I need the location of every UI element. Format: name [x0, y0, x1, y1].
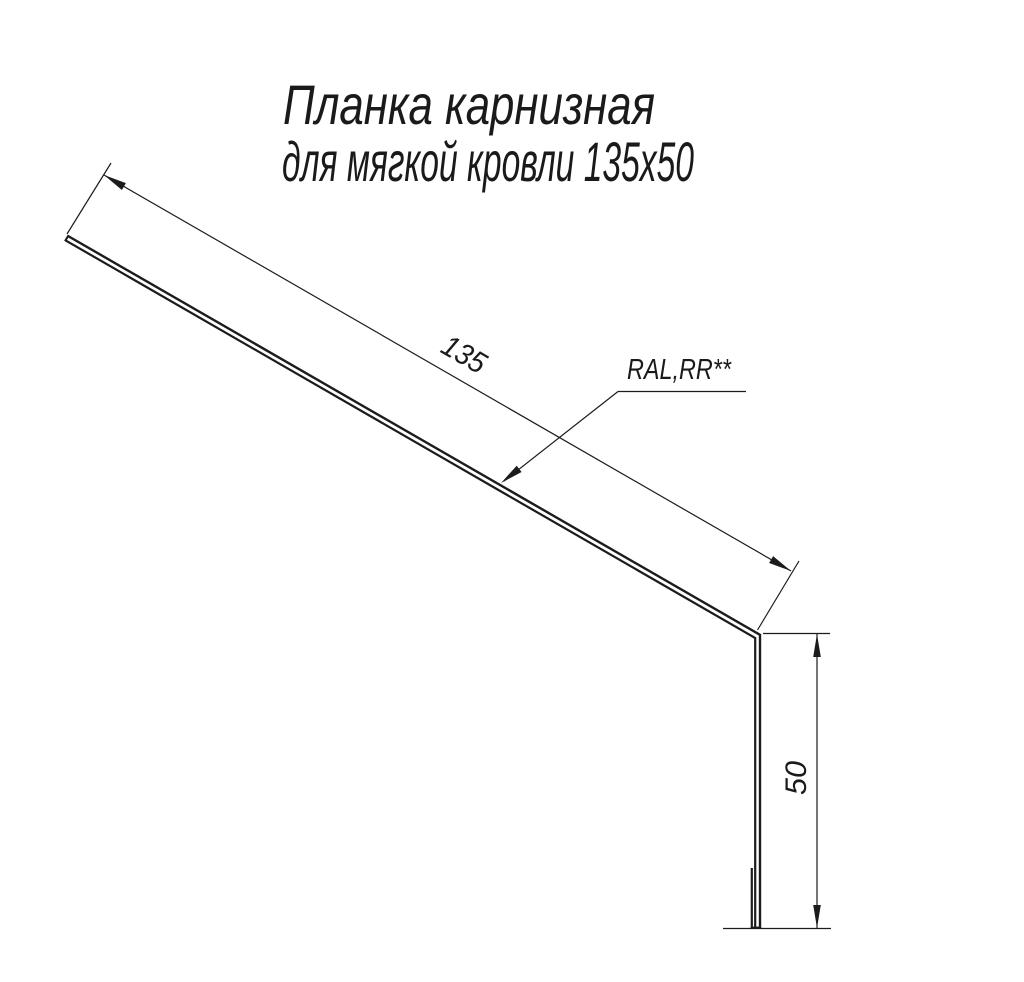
- dim50-value-label: 50: [780, 761, 813, 795]
- dim135-arrow-end-icon: [769, 556, 791, 571]
- dim50-arrow-top-icon: [813, 634, 821, 657]
- technical-drawing: Планка карнизная для мягкой кровли 135х5…: [0, 0, 1024, 982]
- dimension-lines-group: [67, 163, 831, 929]
- leader-arrow-icon: [501, 466, 522, 483]
- dim135-extension-line-start: [67, 163, 111, 234]
- drawing-sheet: Планка карнизная для мягкой кровли 135х5…: [0, 0, 1024, 982]
- leader-diagonal-line: [504, 392, 618, 482]
- part-outline-group: [65, 235, 761, 928]
- dim135-arrow-start-icon: [104, 175, 126, 190]
- coating-spec-label: RAL,RR**: [627, 354, 732, 386]
- dim50-arrow-bottom-icon: [813, 905, 821, 928]
- drawing-title-line2: для мягкой кровли 135х50: [282, 130, 694, 193]
- drawing-title-line1: Планка карнизная: [283, 73, 655, 136]
- dim135-extension-line-end: [758, 561, 800, 630]
- text-group: Планка карнизная для мягкой кровли 135х5…: [282, 73, 813, 795]
- arrowheads-group: [104, 175, 821, 928]
- dim135-value-label: 135: [436, 329, 493, 381]
- plank-inner-surface-line: [66, 240, 756, 928]
